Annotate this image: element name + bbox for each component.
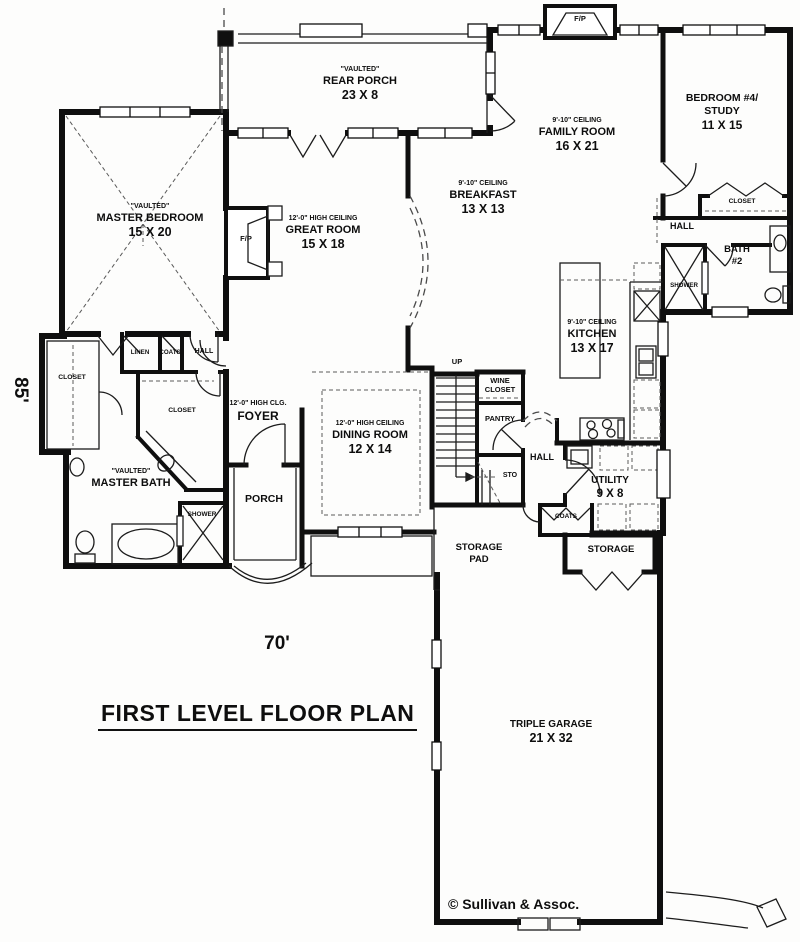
linen-text: LINEN [131,349,150,357]
triple-garage-name: TRIPLE GARAGE [510,719,592,731]
label-coats-upper: COATS [159,349,180,357]
family-room-name: FAMILY ROOM [539,126,615,139]
label-great-room: 12'-0" HIGH CEILING GREAT ROOM 15 X 18 [286,215,361,252]
label-kitchen: 9'-10" CEILING KITCHEN 13 X 17 [567,319,616,356]
closet-left-text: CLOSET [58,374,86,382]
rear-porch-dims: 23 X 8 [342,88,378,103]
hall-left-text: HALL [195,348,214,357]
utility-dims: 9 X 8 [597,487,624,501]
storage-pad-line2: PAD [469,554,488,566]
label-closet-master: CLOSET [168,407,196,415]
label-bath-2: BATH #2 [724,244,750,267]
floor-plan-page: "VAULTED" MASTER BEDROOM 15 X 20 "VAULTE… [0,0,800,942]
label-shower-bath2: SHOWER [670,282,698,290]
storage-name: STORAGE [588,544,635,556]
label-front-porch: PORCH [245,493,283,506]
storage-pad-line1: STORAGE [456,542,503,554]
dining-room-note: 12'-0" HIGH CEILING [336,420,405,429]
shower-bath2-text: SHOWER [670,282,698,290]
label-foyer: 12'-0" HIGH CLG. FOYER [229,400,286,423]
great-room-name: GREAT ROOM [286,224,361,237]
great-room-note: 12'-0" HIGH CEILING [289,215,358,224]
label-triple-garage: TRIPLE GARAGE 21 X 32 [510,719,592,746]
coats-lower-text: COATS [555,513,577,521]
rear-porch-note: "VAULTED" [341,66,380,75]
triple-garage-dims: 21 X 32 [529,731,572,746]
front-porch-name: PORCH [245,493,283,506]
label-breakfast: 9'-10" CEILING BREAKFAST 13 X 13 [449,180,516,217]
dimension-width: 70' [264,633,290,655]
label-stairs-up: UP [452,357,462,366]
kitchen-note: 9'-10" CEILING [567,319,616,328]
master-bedroom-name: MASTER BEDROOM [97,212,204,225]
wine-closet-line1: WINE [490,376,510,385]
breakfast-note: 9'-10" CEILING [458,180,507,189]
label-stairs-storage: STO [503,472,517,481]
breakfast-name: BREAKFAST [449,189,516,202]
label-hall-right: HALL [670,221,694,232]
label-fireplace-family: F/P [574,14,586,23]
kitchen-dims: 13 X 17 [570,341,613,356]
label-master-bedroom: "VAULTED" MASTER BEDROOM 15 X 20 [97,203,204,240]
bedroom-4-name-line2: STUDY [704,105,740,118]
great-room-dims: 15 X 18 [301,237,344,252]
fireplace-great-text: F/P [240,234,252,243]
dimension-height: 85' [9,377,31,403]
wine-closet-line2: CLOSET [485,385,515,394]
family-room-note: 9'-10" CEILING [552,117,601,126]
label-linen: LINEN [131,349,150,357]
closet-master-text: CLOSET [168,407,196,415]
stairs-up-text: UP [452,357,462,366]
coats-upper-text: COATS [159,349,180,357]
foyer-note: 12'-0" HIGH CLG. [229,400,286,409]
shower-master-text: SHOWER [188,511,217,519]
utility-name: UTILITY [591,475,629,487]
label-coats-lower: COATS [555,513,577,521]
label-pantry: PANTRY [485,414,515,423]
label-fireplace-great: F/P [240,234,252,243]
label-family-room: 9'-10" CEILING FAMILY ROOM 16 X 21 [539,117,615,154]
master-bedroom-dims: 15 X 20 [128,225,171,240]
fireplace-family-text: F/P [574,14,586,23]
label-dining-room: 12'-0" HIGH CEILING DINING ROOM 12 X 14 [332,420,408,457]
label-rear-porch: "VAULTED" REAR PORCH 23 X 8 [323,66,397,103]
label-hall-center: HALL [530,452,554,463]
breakfast-dims: 13 X 13 [461,202,504,217]
bedroom-4-name-line1: BEDROOM #4/ [686,92,758,105]
foyer-name: FOYER [237,409,278,424]
label-storage-pad: STORAGE PAD [456,542,503,565]
copyright-notice: © Sullivan & Assoc. [448,896,579,912]
hall-center-text: HALL [530,452,554,463]
family-room-dims: 16 X 21 [555,139,598,154]
dining-room-dims: 12 X 14 [348,442,391,457]
label-shower-master: SHOWER [188,511,217,519]
bath-2-line2: #2 [732,256,743,268]
label-closet-bedroom4: CLOSET [729,198,756,206]
stairs-storage-text: STO [503,472,517,481]
master-bath-note: "VAULTED" [112,468,151,477]
hall-right-text: HALL [670,221,694,232]
dining-room-name: DINING ROOM [332,429,408,442]
label-storage: STORAGE [588,544,635,556]
bath-2-line1: BATH [724,244,750,256]
pantry-name: PANTRY [485,414,515,423]
label-master-bath: "VAULTED" MASTER BATH [91,468,170,490]
kitchen-name: KITCHEN [568,328,617,341]
label-wine-closet: WINE CLOSET [485,376,515,394]
master-bath-name: MASTER BATH [91,477,170,490]
bedroom-4-dims: 11 X 15 [702,118,743,133]
master-bedroom-note: "VAULTED" [131,203,170,212]
label-closet-left: CLOSET [58,374,86,382]
label-bedroom-4: BEDROOM #4/ STUDY 11 X 15 [686,92,758,132]
rear-porch-name: REAR PORCH [323,75,397,88]
label-utility: UTILITY 9 X 8 [591,475,629,501]
label-hall-left: HALL [195,348,214,357]
closet-bedroom4-text: CLOSET [729,198,756,206]
plan-title: FIRST LEVEL FLOOR PLAN [98,700,417,731]
